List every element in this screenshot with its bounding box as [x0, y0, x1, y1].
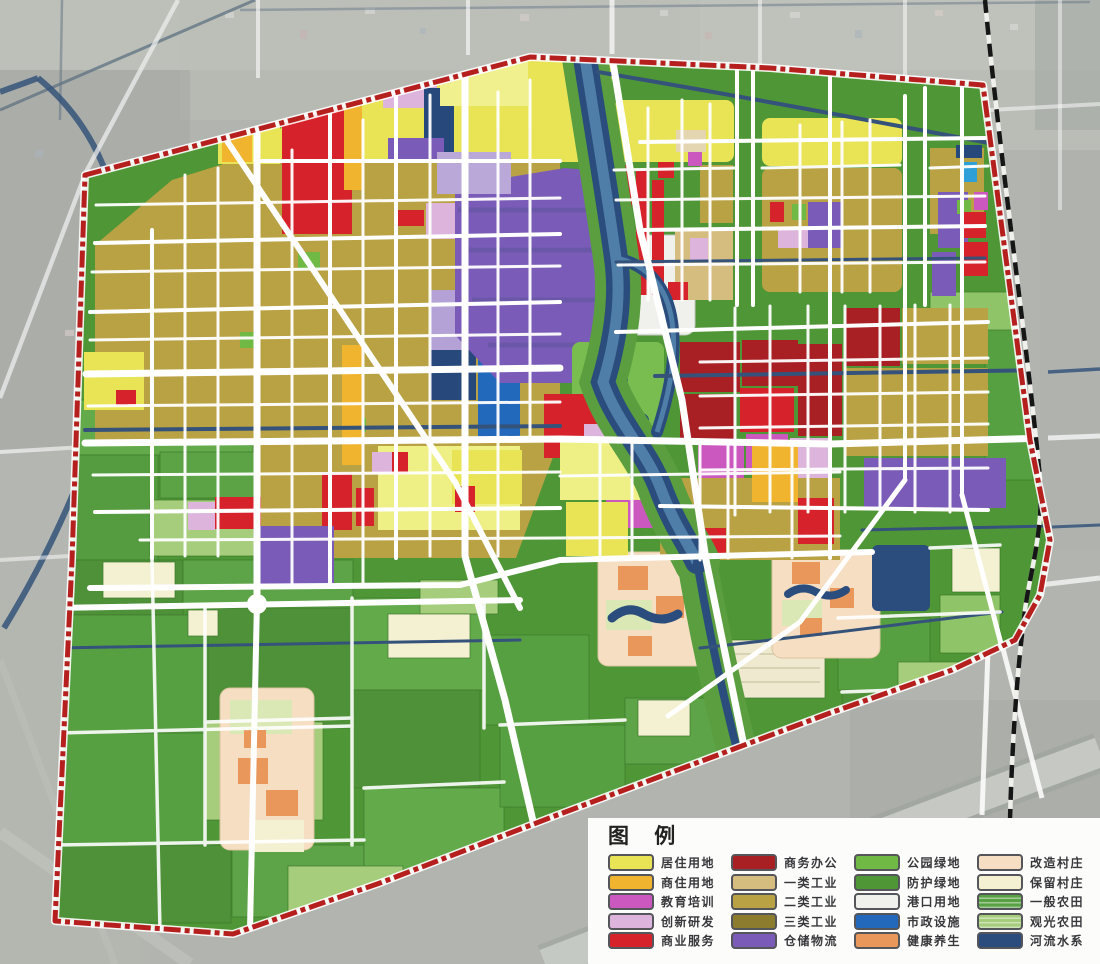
legend-item-farmland-general: 一般农田: [977, 894, 1100, 909]
farmland-general-swatch: [977, 893, 1023, 910]
legend-item-warehouse-logistics: 仓储物流: [731, 933, 854, 948]
legend-item-protective-green: 防护绿地: [854, 875, 977, 890]
village-retain-swatch: [977, 874, 1023, 891]
innovation-swatch: [608, 913, 654, 930]
education-swatch: [608, 893, 654, 910]
business-office-swatch: [731, 854, 777, 871]
legend-item-river: 河流水系: [977, 933, 1100, 948]
zone-industrial-east: [846, 308, 1006, 508]
legend-label: 居住用地: [661, 854, 715, 871]
wellness-park-east: [772, 550, 880, 658]
legend-title: 图 例: [608, 825, 1100, 848]
village-renovate-swatch: [977, 854, 1023, 871]
reservoir-parcel: [872, 545, 930, 611]
legend-label: 市政设施: [907, 913, 961, 930]
legend-item-industry-3: 三类工业: [731, 914, 854, 929]
legend-panel: 图 例 居住用地商住用地教育培训创新研发商业服务商务办公一类工业二类工业三类工业…: [588, 818, 1100, 964]
port-swatch: [854, 893, 900, 910]
commercial-residential-swatch: [608, 874, 654, 891]
residential-swatch: [608, 854, 654, 871]
legend-item-village-renovate: 改造村庄: [977, 855, 1100, 870]
legend-item-business-office: 商务办公: [731, 855, 854, 870]
legend-item-industry-2: 二类工业: [731, 894, 854, 909]
legend-label: 河流水系: [1030, 932, 1084, 949]
legend-item-education: 教育培训: [608, 894, 731, 909]
legend-label: 商住用地: [661, 874, 715, 891]
legend-item-commercial-residential: 商住用地: [608, 875, 731, 890]
legend-item-park-green: 公园绿地: [854, 855, 977, 870]
renovated-village-southwest: [220, 688, 314, 852]
legend-label: 改造村庄: [1030, 854, 1084, 871]
industry-3-swatch: [731, 913, 777, 930]
farmland-sightseeing-swatch: [977, 913, 1023, 930]
legend-label: 一类工业: [784, 874, 838, 891]
industry-2-swatch: [731, 893, 777, 910]
legend-columns: 居住用地商住用地教育培训创新研发商业服务商务办公一类工业二类工业三类工业仓储物流…: [608, 855, 1100, 948]
legend-label: 观光农田: [1030, 913, 1084, 930]
roundabout: [247, 594, 267, 614]
legend-label: 仓储物流: [784, 932, 838, 949]
legend-item-wellness: 健康养生: [854, 933, 977, 948]
legend-item-residential: 居住用地: [608, 855, 731, 870]
legend-item-commercial-service: 商业服务: [608, 933, 731, 948]
legend-column-1: 居住用地商住用地教育培训创新研发商业服务: [608, 855, 731, 948]
legend-label: 健康养生: [907, 932, 961, 949]
protective-green-swatch: [854, 874, 900, 891]
water-parcel: [430, 350, 476, 400]
planning-map-page: 图 例 居住用地商住用地教育培训创新研发商业服务商务办公一类工业二类工业三类工业…: [0, 0, 1100, 964]
legend-column-2: 商务办公一类工业二类工业三类工业仓储物流: [731, 855, 854, 948]
legend-label: 商业服务: [661, 932, 715, 949]
legend-label: 港口用地: [907, 893, 961, 910]
wellness-swatch: [854, 932, 900, 949]
park-green-swatch: [854, 854, 900, 871]
legend-item-industry-1: 一类工业: [731, 875, 854, 890]
legend-label: 防护绿地: [907, 874, 961, 891]
industry-1-swatch: [731, 874, 777, 891]
legend-label: 公园绿地: [907, 854, 961, 871]
legend-label: 一般农田: [1030, 893, 1084, 910]
legend-label: 二类工业: [784, 893, 838, 910]
legend-column-3: 公园绿地防护绿地港口用地市政设施健康养生: [854, 855, 977, 948]
warehouse-logistics-swatch: [731, 932, 777, 949]
legend-item-farmland-sightseeing: 观光农田: [977, 914, 1100, 929]
river-swatch: [977, 932, 1023, 949]
legend-column-4: 改造村庄保留村庄一般农田观光农田河流水系: [977, 855, 1100, 948]
legend-label: 创新研发: [661, 913, 715, 930]
municipal-swatch: [854, 913, 900, 930]
legend-label: 三类工业: [784, 913, 838, 930]
legend-item-village-retain: 保留村庄: [977, 875, 1100, 890]
legend-item-municipal: 市政设施: [854, 914, 977, 929]
legend-item-port: 港口用地: [854, 894, 977, 909]
legend-label: 教育培训: [661, 893, 715, 910]
commercial-service-swatch: [608, 932, 654, 949]
legend-item-innovation: 创新研发: [608, 914, 731, 929]
legend-label: 保留村庄: [1030, 874, 1084, 891]
legend-label: 商务办公: [784, 854, 838, 871]
